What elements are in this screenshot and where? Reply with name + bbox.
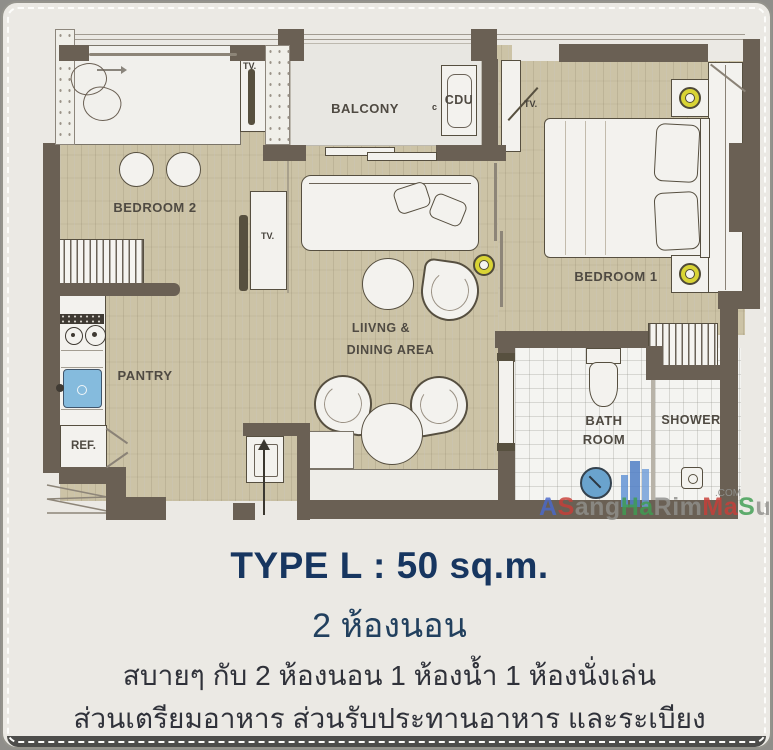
wall-closet-bottom <box>646 365 723 380</box>
entry-cabinet <box>308 431 354 469</box>
window-opening-glyph <box>45 481 111 519</box>
photo-frame: TV. BEDROOM 2 TV. BALCONY CDU c TV. BEDR… <box>1 1 772 749</box>
cdu-small-label: c <box>432 102 437 112</box>
wall-stub-top-left <box>59 45 89 61</box>
counter-divider <box>61 409 103 410</box>
balcony-label: BALCONY <box>325 101 405 116</box>
type-title: TYPE L : 50 sq.m. <box>3 545 772 587</box>
stool <box>119 152 154 187</box>
tv-panel <box>239 215 248 291</box>
window-rail-line <box>67 39 745 40</box>
living-label-line2: DINING AREA <box>338 343 443 357</box>
sliding-partition-rail <box>500 231 503 307</box>
bathroom-label-line2: ROOM <box>578 432 630 447</box>
wardrobe-bedroom2 <box>56 239 144 286</box>
subtitle-thai: 2 ห้องนอน <box>3 598 772 652</box>
bed-fold-line <box>605 121 606 255</box>
pantry-label: PANTRY <box>113 368 177 383</box>
dimension-arrowhead <box>121 66 127 74</box>
stove-burner-dot <box>92 332 97 337</box>
ceiling-lamp-icon <box>473 254 495 276</box>
cdu-label: CDU <box>441 93 477 107</box>
wardrobe-divider <box>725 65 726 290</box>
column-balcony-left <box>265 45 290 145</box>
counter-divider <box>61 350 103 351</box>
heater-dial <box>688 474 698 484</box>
description-line2: ส่วนเตรียมอาหาร ส่วนรับประทานอาหาร และระ… <box>3 697 772 741</box>
wall-balcony-right <box>482 59 498 147</box>
wall-entry-jamb-left <box>233 503 255 520</box>
stove-burner-dot <box>71 333 75 337</box>
bed-fold-line <box>565 121 566 255</box>
wall-kitchen-end-3 <box>106 497 166 520</box>
console-cabinet <box>308 469 500 501</box>
living-label-line1: LIIVNG & <box>343 321 419 335</box>
sliding-door-panel <box>367 152 437 161</box>
wall-bedroom2-south <box>58 283 180 296</box>
ceiling-lamp-icon <box>679 263 701 285</box>
watermark-suffix: .COM <box>715 488 741 499</box>
bathroom-sliding-door <box>498 359 514 445</box>
ceiling-lamp-icon <box>679 87 701 109</box>
tv-label: TV. <box>243 61 256 71</box>
tv-label: TV. <box>261 231 274 241</box>
window-rail-line <box>67 34 745 35</box>
curtain-rod <box>89 53 237 56</box>
door-rail-cap <box>497 443 515 451</box>
pillow <box>654 123 701 183</box>
wall-right-lower <box>720 303 738 500</box>
tv-label: TV. <box>524 99 537 109</box>
wall-balcony-right-bottom <box>436 145 506 161</box>
headboard <box>700 118 710 258</box>
wall-left <box>43 143 60 473</box>
ref-label: REF. <box>60 440 107 452</box>
door-rail-cap <box>497 353 515 361</box>
wall-balcony-left-bottom <box>263 145 306 161</box>
sliding-partition-rail <box>494 163 497 241</box>
photo-bottom-edge <box>7 736 766 747</box>
stove-speckle-band <box>60 314 104 324</box>
wall-balcony-right-block <box>471 29 497 61</box>
bedroom1-label: BEDROOM 1 <box>563 269 669 284</box>
floorplan-photo: TV. BEDROOM 2 TV. BALCONY CDU c TV. BEDR… <box>0 0 773 750</box>
wall-bedroom2-east-line <box>287 160 289 293</box>
faucet <box>56 384 64 392</box>
bedroom2-label: BEDROOM 2 <box>103 200 207 215</box>
sofa-back-line <box>309 183 471 186</box>
entry-arrow-head <box>258 439 270 450</box>
dining-table <box>361 403 423 465</box>
description-line1: สบายๆ กับ 2 ห้องนอน 1 ห้องน้ำ 1 ห้องนั่ง… <box>3 654 772 698</box>
wall-kitchen-end-1 <box>59 467 110 484</box>
toilet-bowl <box>589 362 618 407</box>
counter-divider <box>61 367 103 368</box>
tv-panel <box>248 69 255 125</box>
bed-fold-line <box>585 121 586 255</box>
ottoman <box>362 258 414 310</box>
wall-right-upper <box>743 39 760 306</box>
shower-glass-partition <box>651 380 655 500</box>
wall-bathroom-left-lower <box>498 443 515 501</box>
wall-bathroom-top <box>495 331 648 348</box>
sink-drain <box>77 385 87 395</box>
entry-arrow-line <box>263 449 265 515</box>
shower-label: SHOWER <box>658 413 724 427</box>
pillow <box>654 191 701 251</box>
stool <box>166 152 201 187</box>
bathroom-label-line1: BATH <box>581 413 627 428</box>
wall-bedroom1-top <box>559 44 708 62</box>
wardrobe-dark-section <box>729 143 743 232</box>
